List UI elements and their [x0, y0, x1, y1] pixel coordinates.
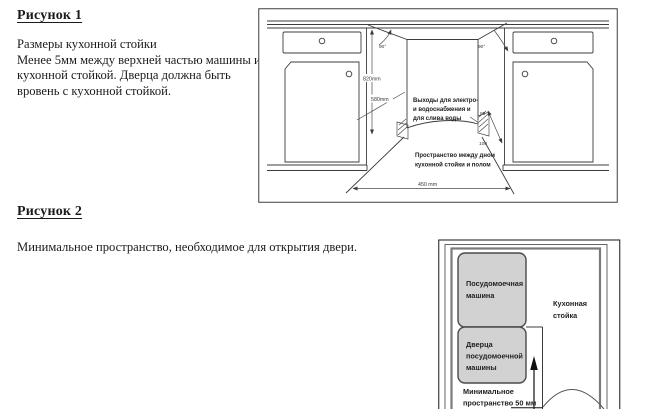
counter-label-line: Кухонная: [553, 299, 587, 308]
door-label-line: Дверца: [466, 340, 494, 349]
outlets-label-line: и водоснабжения и: [413, 106, 471, 113]
figure1-caption-line: кухонной стойкой. Дверца должна быть: [17, 68, 261, 84]
figure1-caption-line: Размеры кухонной стойки: [17, 37, 261, 53]
page: Рисунок 1 Размеры кухонной стойки Менее …: [0, 0, 650, 409]
gap-bottom-label: 100: [479, 141, 487, 147]
gap-top-label: 80: [480, 111, 486, 117]
angle-left-label: 90°: [379, 44, 386, 50]
figure2-caption: Минимальное пространство, необходимое дл…: [17, 240, 357, 256]
min-space-label-line: пространство 50 мм: [463, 399, 536, 408]
depth-dimension-label: 580mm: [371, 97, 389, 103]
min-space-prefix: пространство: [463, 399, 515, 408]
figure1-border: [259, 9, 618, 203]
figure2-heading: Рисунок 2: [17, 204, 82, 220]
floor-space-label-line: кухонной стойки и полом: [415, 162, 491, 169]
figure1-heading: Рисунок 1: [17, 8, 82, 24]
dishwasher-box: [458, 253, 526, 327]
width-dimension-label: 450 mm: [418, 182, 438, 188]
counter-label-line: стойка: [553, 311, 578, 320]
figure1-caption-line: Менее 5мм между верхней частью машины и: [17, 53, 261, 69]
figure1-caption: Размеры кухонной стойки Менее 5мм между …: [17, 37, 261, 99]
floor-space-label-line: Пространство между дном: [415, 153, 496, 159]
min-space-label-line: Минимальное: [463, 387, 514, 396]
figure1-caption-line: вровень с кухонной стойкой.: [17, 84, 261, 100]
dishwasher-label-line: Посудомоечная: [466, 279, 523, 288]
door-label-line: машины: [466, 363, 497, 372]
door-label-line: посудомоечной: [466, 352, 523, 361]
outlets-label-line: Выходы для электро-: [413, 98, 478, 104]
figure2-diagram: Посудомоечная машина Дверца посудомоечно…: [438, 237, 621, 409]
angle-right-label: 90°: [478, 44, 485, 50]
height-dimension-label: 820mm: [363, 77, 381, 83]
dishwasher-label-line: машина: [466, 291, 495, 300]
min-space-value: 50 мм: [515, 399, 536, 408]
outlets-label-line: для слива воды: [413, 116, 461, 122]
figure1-diagram: 820mm 580mm 450 mm 90° 90° 80 100 Выходы…: [258, 8, 618, 203]
